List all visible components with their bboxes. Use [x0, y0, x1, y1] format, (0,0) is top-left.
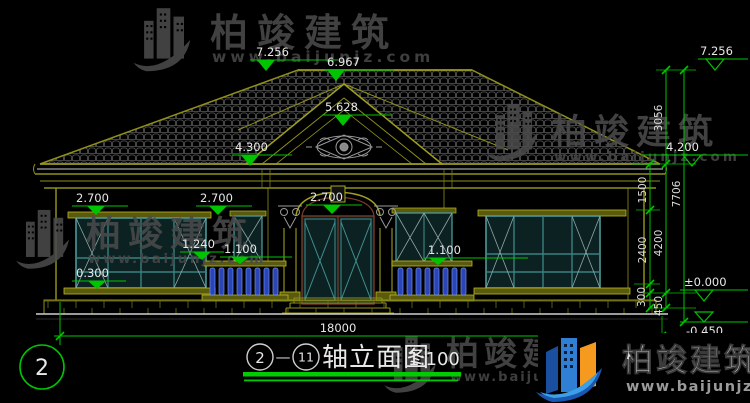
brand-logo-url: www.baijunjz.com	[626, 379, 750, 395]
watermark-url: www.baijunjz.com	[554, 149, 740, 165]
title-underline-thin	[244, 380, 458, 382]
level-ridge-right: 7.256	[700, 44, 733, 58]
plinth	[36, 300, 668, 319]
title-axis-start: 2	[255, 349, 265, 367]
watermark-left: 柏竣建筑 www.baijunjz.com	[16, 210, 266, 269]
dim-roof-rise: 3056	[653, 104, 665, 131]
level-door-arch: 2.700	[310, 190, 343, 204]
level-ridge-left: 7.256	[256, 45, 289, 59]
level-gable-top: 6.967	[327, 55, 360, 69]
title-underline-thick	[243, 372, 461, 377]
balustrade-right	[390, 261, 474, 301]
level-rail-left: 1.100	[224, 242, 257, 256]
dim-total-width: 18000	[320, 321, 357, 335]
bj-logo-icon	[16, 210, 69, 269]
level-eave-right: 4.200	[666, 140, 699, 154]
axis-bubble-label: 2	[35, 356, 49, 381]
brand-logo-color: 柏竣建筑 www.baijunjz.com	[536, 333, 750, 403]
axis-bubble-2: 2	[20, 345, 64, 389]
level-rail-right: 1.100	[428, 243, 461, 257]
level-sill-left: 0.300	[76, 266, 109, 280]
window-right	[474, 210, 630, 294]
cornice	[34, 164, 667, 188]
bj-logo-icon	[134, 8, 191, 71]
drawing-scale: 1:100	[408, 349, 460, 370]
level-lintel-left: 2.700	[76, 191, 109, 205]
dim-plinth-band: 450	[653, 296, 665, 316]
elevation-svg: 柏竣建筑 www.baijunjz.com 柏竣建筑 www.baijunjz.…	[0, 0, 750, 403]
balustrade-left	[202, 261, 288, 301]
watermark-url: www.baijunjz.com	[212, 48, 434, 66]
level-mid-sill: 1.240	[182, 237, 215, 251]
capital-right	[374, 206, 398, 228]
level-lintel-mid: 2.700	[200, 191, 233, 205]
title-separator: —	[276, 348, 291, 366]
level-floor-right: ±0.000	[684, 275, 727, 289]
level-pediment: 5.628	[325, 100, 358, 114]
level-eave-wing: 4.300	[235, 140, 268, 154]
dim-total-height: 7706	[671, 180, 683, 207]
dim-sill-band: 300	[636, 287, 648, 307]
title-axis-end: 11	[298, 350, 314, 365]
dim-window-band: 2400	[637, 237, 649, 264]
title-block: 2 — 11 轴立面图 1:100	[243, 343, 461, 381]
capital-left	[278, 206, 302, 228]
watermark-top: 柏竣建筑 www.baijunjz.com	[134, 8, 435, 71]
cad-elevation-drawing: 柏竣建筑 www.baijunjz.com 柏竣建筑 www.baijunjz.…	[0, 0, 750, 403]
brand-logo-name: 柏竣建筑	[622, 343, 750, 379]
dim-eave-band: 1500	[637, 177, 649, 204]
dim-upper-total: 4200	[653, 230, 665, 257]
